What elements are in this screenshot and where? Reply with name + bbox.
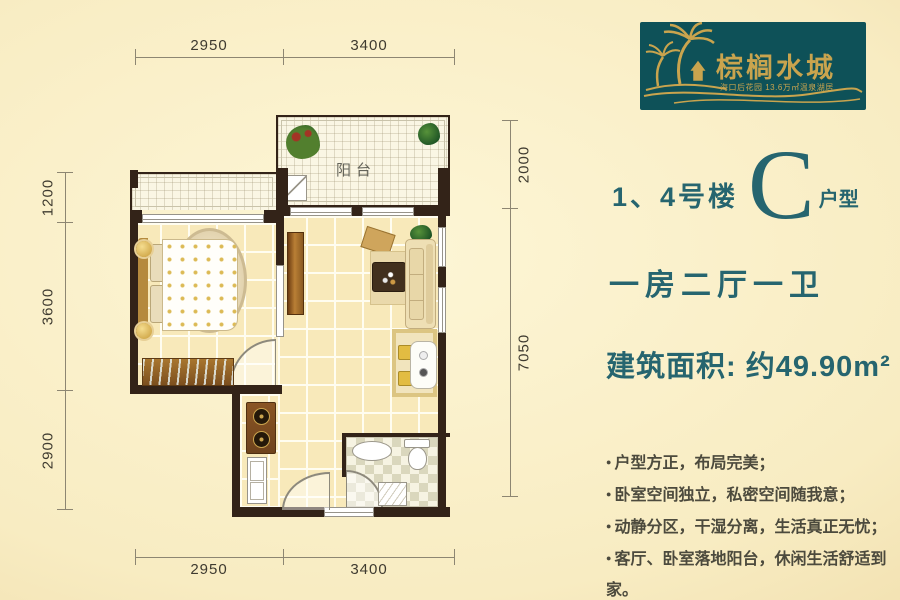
- feature-text: 卧室空间独立，私密空间随我意；: [614, 487, 854, 504]
- logo-title: 棕榈水城: [716, 46, 836, 85]
- window: [142, 214, 264, 223]
- wall: [352, 207, 362, 216]
- sliding-door: [290, 207, 352, 216]
- feature-item: ●户型方正，布局完美；: [606, 447, 900, 479]
- feature-item: ●动静分区，干湿分离，生活真正无忧；: [606, 511, 900, 543]
- unit-title-prefix: 1、4号楼: [612, 175, 738, 224]
- dining-rug: [392, 329, 437, 397]
- dimension-top: 2950 3400: [135, 40, 455, 64]
- shower-tray-icon: [378, 482, 407, 506]
- wall: [374, 507, 450, 517]
- sink-icon: [352, 441, 392, 461]
- plant-icon: [418, 123, 440, 145]
- area-text: 建筑面积: 约49.90m²: [606, 343, 891, 385]
- unit-title: 1、4号楼 C 户型: [612, 146, 859, 224]
- dim-label: 2900: [40, 421, 57, 481]
- bullet-icon: ●: [606, 553, 611, 563]
- wall: [232, 394, 240, 509]
- wall: [414, 207, 450, 216]
- dimension-left: 1200 3600 2900: [50, 172, 80, 510]
- dim-label: 1200: [40, 168, 57, 228]
- layout-text: 一房二厅一卫: [609, 260, 825, 304]
- logo-subtitle: 海口后花园 13.6万㎡温泉湖居: [720, 82, 834, 93]
- window: [438, 227, 446, 267]
- unit-title-suffix: 户型: [819, 183, 859, 224]
- dim-label: 2950: [164, 37, 254, 54]
- dimension-right: 2000 7050: [498, 120, 532, 497]
- dim-label: 2950: [164, 561, 254, 578]
- plant-icon: [286, 125, 320, 159]
- dining-table: [410, 341, 437, 389]
- window: [362, 207, 414, 216]
- wardrobe: [142, 358, 234, 386]
- dim-label: 2000: [516, 135, 533, 195]
- feature-item: ●卧室空间独立，私密空间随我意；: [606, 479, 900, 511]
- toilet-icon: [408, 447, 427, 470]
- stove-icon: [246, 402, 276, 454]
- balcony-label: 阳台: [336, 159, 406, 180]
- wall: [130, 170, 138, 188]
- bed-duvet: [162, 239, 238, 331]
- kitchen-counter: [247, 457, 267, 504]
- dimension-bottom: 2950 3400: [135, 553, 455, 579]
- bullet-icon: ●: [606, 457, 611, 467]
- unit-letter: C: [748, 146, 815, 224]
- dim-label: 7050: [516, 323, 533, 383]
- feature-list: ●户型方正，布局完美； ●卧室空间独立，私密空间随我意； ●动静分区，干湿分离，…: [606, 447, 900, 600]
- bullet-icon: ●: [606, 521, 611, 531]
- entry-threshold: [324, 507, 374, 517]
- wall: [130, 385, 282, 394]
- balcony-bedroom: [130, 172, 276, 210]
- feature-text: 户型方正，布局完美；: [614, 455, 774, 472]
- window: [438, 287, 446, 333]
- floor-plan: 阳台: [130, 115, 456, 517]
- door-frame: [276, 265, 284, 337]
- dim-label: 3400: [324, 37, 414, 54]
- coffee-table: [372, 262, 406, 292]
- feature-item: ●客厅、卧室落地阳台，休闲生活舒适到家。: [606, 543, 900, 600]
- bullet-icon: ●: [606, 489, 611, 499]
- dim-label: 3400: [324, 561, 414, 578]
- wall: [342, 433, 450, 437]
- wall: [130, 210, 142, 223]
- tv-cabinet: [287, 232, 304, 315]
- wall: [264, 210, 276, 223]
- feature-text: 动静分区，干湿分离，生活真正无忧；: [614, 519, 886, 536]
- flyer-page: 阳台: [0, 0, 900, 600]
- lamp-icon: [136, 323, 152, 339]
- feature-text: 客厅、卧室落地阳台，休闲生活舒适到家。: [606, 551, 886, 599]
- lamp-icon: [136, 241, 152, 257]
- wall: [276, 203, 284, 265]
- sofa: [405, 239, 436, 329]
- brand-logo: 棕榈水城 海口后花园 13.6万㎡温泉湖居: [640, 22, 866, 110]
- dim-label: 3600: [40, 277, 57, 337]
